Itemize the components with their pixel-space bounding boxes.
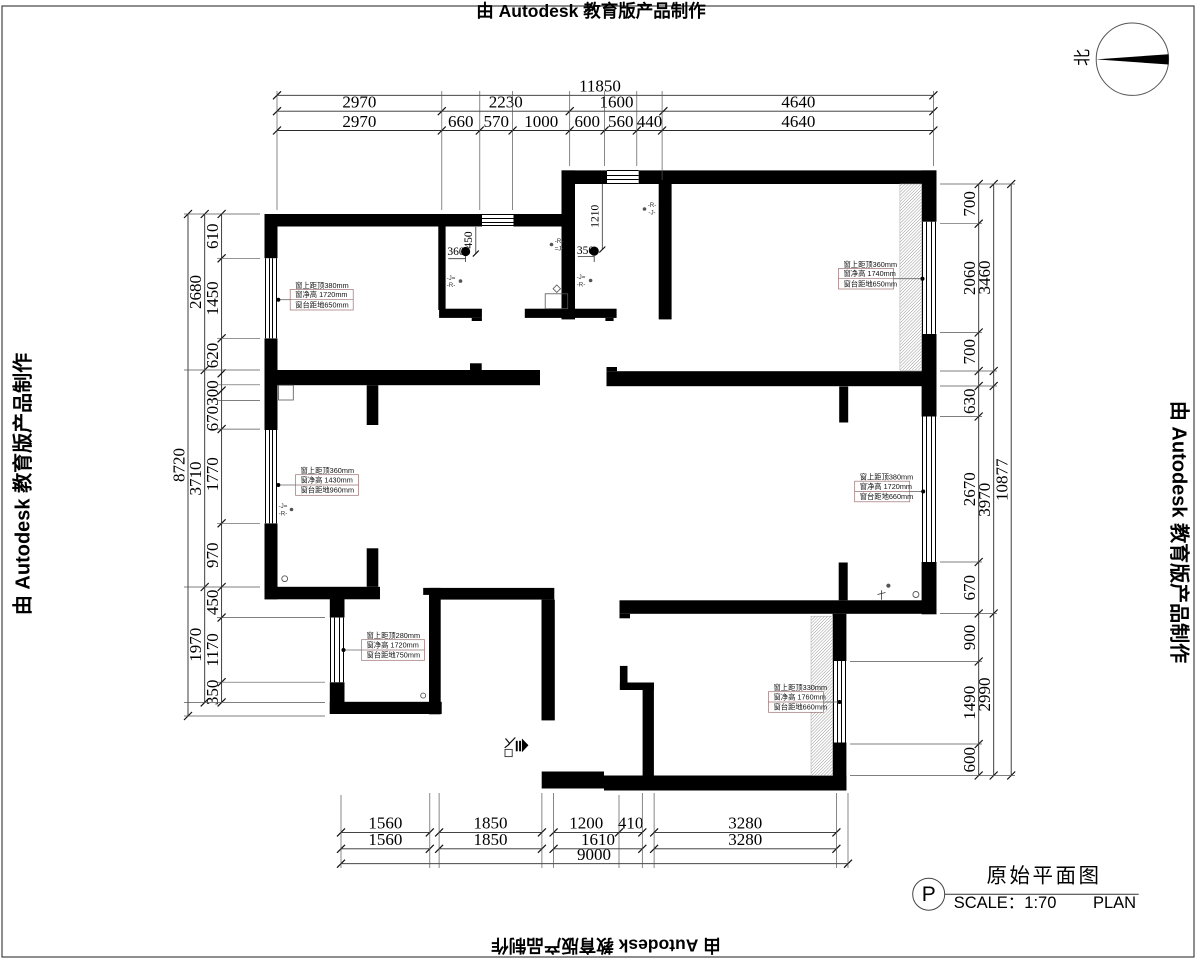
svg-text:由 Autodesk 教育版产品制作: 由 Autodesk 教育版产品制作: [476, 1, 706, 21]
svg-text:1170: 1170: [203, 633, 222, 666]
svg-text:窗净高 1720mm: 窗净高 1720mm: [367, 640, 419, 649]
svg-text:PLAN: PLAN: [1093, 894, 1136, 912]
svg-text:窗上距顶360mm: 窗上距顶360mm: [301, 466, 355, 475]
svg-text:窗上距顶280mm: 窗上距顶280mm: [367, 631, 421, 640]
svg-text:900: 900: [960, 625, 979, 651]
svg-text:9000: 9000: [577, 845, 611, 864]
svg-text:700: 700: [960, 191, 979, 217]
svg-text:610: 610: [203, 223, 222, 249]
svg-text:350: 350: [203, 680, 222, 706]
svg-text:窗净高 1720mm: 窗净高 1720mm: [860, 482, 912, 491]
svg-text:1000: 1000: [524, 112, 558, 131]
svg-text:窗净高 1740mm: 窗净高 1740mm: [844, 269, 896, 278]
svg-text:2230: 2230: [489, 93, 523, 112]
svg-text:10877: 10877: [993, 458, 1012, 501]
svg-text:-J-: -J-: [648, 210, 655, 217]
svg-text:P: P: [922, 883, 936, 906]
svg-text:窗上距顶380mm: 窗上距顶380mm: [860, 473, 914, 482]
svg-text:4640: 4640: [781, 112, 815, 131]
svg-text:1210: 1210: [590, 204, 602, 227]
svg-text:窗上距顶380mm: 窗上距顶380mm: [295, 281, 349, 290]
svg-text:窗上距顶360mm: 窗上距顶360mm: [844, 260, 898, 269]
svg-text:窗净高 1720mm: 窗净高 1720mm: [295, 290, 347, 299]
svg-text:3280: 3280: [728, 830, 762, 849]
svg-text:600: 600: [574, 112, 600, 131]
svg-text:窗台距地750mm: 窗台距地750mm: [367, 651, 421, 660]
svg-text:560: 560: [608, 112, 634, 131]
svg-text:-R-: -R-: [279, 511, 288, 518]
svg-text:670: 670: [203, 406, 222, 432]
svg-text:-R-: -R-: [555, 238, 564, 245]
svg-text:660: 660: [448, 112, 474, 131]
svg-text:北: 北: [1073, 49, 1092, 66]
svg-text:350: 350: [577, 245, 595, 257]
svg-text:-J=: -J=: [279, 503, 288, 510]
svg-text:450: 450: [463, 231, 475, 249]
svg-text:630: 630: [960, 389, 979, 415]
svg-text:窗台距地660mm: 窗台距地660mm: [774, 703, 828, 712]
svg-text:窗上距顶330mm: 窗上距顶330mm: [774, 683, 828, 692]
svg-text:-R-: -R-: [648, 202, 657, 209]
svg-text:670: 670: [960, 575, 979, 601]
svg-text:窗净高 1430mm: 窗净高 1430mm: [301, 475, 353, 484]
svg-text:窗净高 1760mm: 窗净高 1760mm: [774, 692, 826, 701]
svg-text:由 Autodesk 教育版产品制作: 由 Autodesk 教育版产品制作: [491, 935, 721, 955]
svg-text:窗台距地650mm: 窗台距地650mm: [295, 300, 349, 309]
svg-text:4640: 4640: [781, 93, 815, 112]
svg-text:970: 970: [203, 542, 222, 568]
svg-text:620: 620: [203, 343, 222, 369]
svg-text:SCALE：1:70: SCALE：1:70: [954, 894, 1057, 912]
svg-text:3460: 3460: [975, 261, 994, 295]
svg-text:2970: 2970: [342, 93, 376, 112]
svg-text:窗台距地650mm: 窗台距地650mm: [844, 279, 898, 288]
svg-text:-J=: -J=: [447, 275, 456, 282]
svg-text:600: 600: [960, 747, 979, 773]
svg-text:窗台距地960mm: 窗台距地960mm: [301, 486, 355, 495]
svg-text:由 Autodesk 教育版产品制作: 由 Autodesk 教育版产品制作: [1168, 401, 1192, 663]
svg-text:410: 410: [618, 814, 644, 833]
svg-text:2990: 2990: [975, 678, 994, 712]
svg-text:2970: 2970: [342, 112, 376, 131]
svg-text:700: 700: [960, 339, 979, 365]
svg-text:300: 300: [203, 380, 222, 406]
svg-text:1450: 1450: [203, 281, 222, 315]
svg-text:1850: 1850: [474, 830, 508, 849]
svg-text:原始平面图: 原始平面图: [987, 864, 1102, 887]
svg-text:570: 570: [483, 112, 509, 131]
svg-text:由 Autodesk 教育版产品制作: 由 Autodesk 教育版产品制作: [10, 353, 34, 615]
svg-text:1770: 1770: [203, 457, 222, 491]
svg-text:440: 440: [637, 112, 663, 131]
svg-text:-R-: -R-: [577, 282, 586, 289]
svg-text:窗台距地660mm: 窗台距地660mm: [860, 492, 914, 501]
svg-text:-R-: -R-: [447, 282, 456, 289]
svg-text:-J=: -J=: [577, 274, 586, 281]
svg-text:450: 450: [203, 590, 222, 616]
svg-text:1560: 1560: [368, 830, 402, 849]
svg-text:=J-: =J-: [555, 246, 564, 253]
svg-text:3970: 3970: [975, 483, 994, 517]
